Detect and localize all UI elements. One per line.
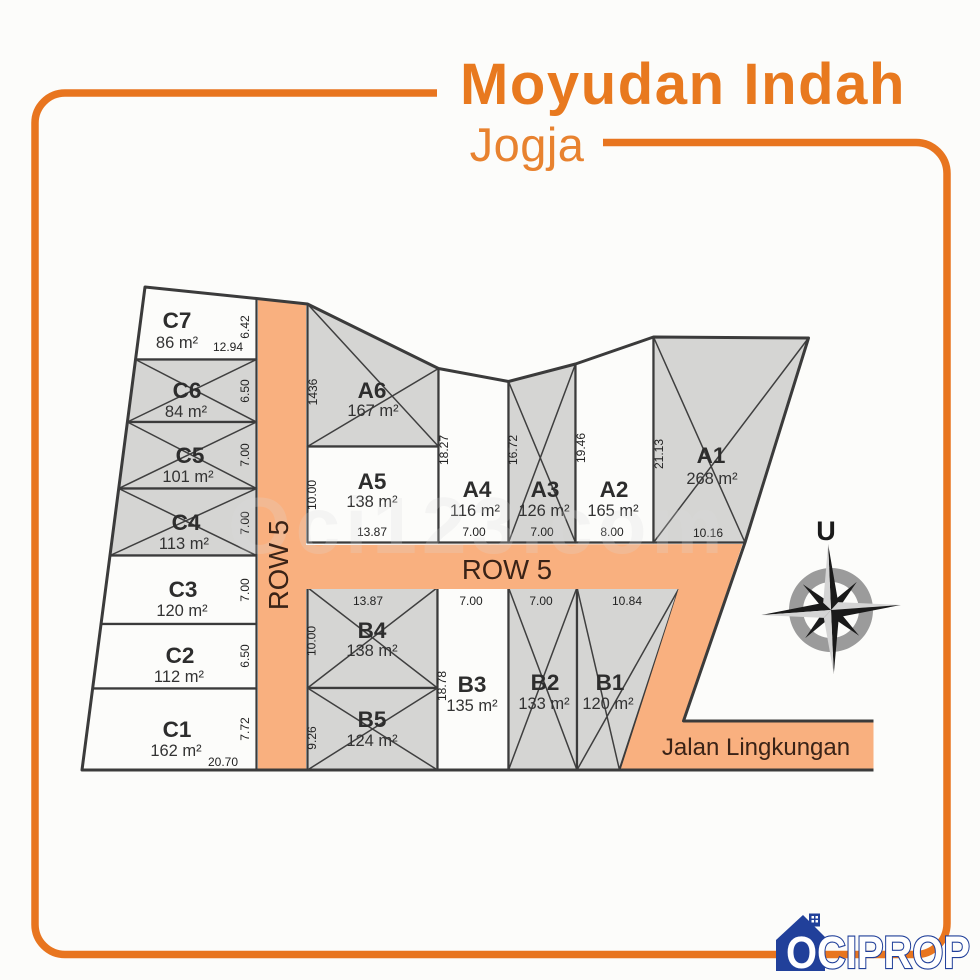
svg-text:7.00: 7.00 [238,443,252,467]
svg-text:138 m²: 138 m² [346,642,398,660]
svg-text:112 m²: 112 m² [154,668,205,686]
svg-text:120 m²: 120 m² [156,602,208,620]
svg-text:7.72: 7.72 [238,717,252,741]
svg-text:12.94: 12.94 [213,340,243,354]
svg-text:C6: C6 [173,378,202,403]
svg-text:ROW 5: ROW 5 [462,554,552,585]
svg-text:7.00: 7.00 [459,594,483,608]
svg-text:B4: B4 [358,618,387,643]
svg-text:C7: C7 [163,308,192,333]
svg-text:B2: B2 [531,670,560,695]
svg-text:B1: B1 [596,670,625,695]
svg-text:C3: C3 [169,577,198,602]
svg-text:21.13: 21.13 [652,439,666,469]
svg-text:C4: C4 [172,510,201,535]
svg-text:C2: C2 [166,643,195,668]
svg-text:13.87: 13.87 [353,594,383,608]
svg-text:Jogja: Jogja [470,118,585,171]
svg-text:120 m²: 120 m² [582,695,634,713]
svg-text:18.78: 18.78 [435,671,449,701]
svg-text:Moyudan Indah: Moyudan Indah [460,52,906,117]
svg-text:133 m²: 133 m² [518,695,570,713]
svg-text:B5: B5 [358,707,387,732]
svg-text:86 m²: 86 m² [156,334,199,352]
svg-text:ROW 5: ROW 5 [263,520,294,610]
svg-text:A6: A6 [358,378,387,403]
svg-text:124 m²: 124 m² [346,732,398,750]
svg-text:C5: C5 [176,443,205,468]
svg-text:162 m²: 162 m² [150,742,202,760]
svg-text:B3: B3 [458,672,487,697]
svg-text:19.46: 19.46 [574,433,588,463]
svg-text:Jalan Lingkungan: Jalan Lingkungan [662,734,850,761]
svg-text:6.42: 6.42 [238,315,252,339]
svg-text:9.26: 9.26 [305,726,319,750]
svg-text:167 m²: 167 m² [347,402,399,420]
svg-text:OCIPROP: OCIPROP [786,927,970,978]
svg-text:6.50: 6.50 [238,644,252,668]
svg-text:6.50: 6.50 [238,379,252,403]
svg-text:A1: A1 [697,443,726,468]
svg-text:10.84: 10.84 [612,594,642,608]
svg-text:7.00: 7.00 [529,594,553,608]
svg-text:84 m²: 84 m² [165,403,208,421]
svg-text:10.00: 10.00 [305,626,319,656]
svg-text:113 m²: 113 m² [159,535,210,553]
svg-text:U: U [816,516,836,546]
svg-text:18.27: 18.27 [437,435,451,465]
svg-text:20.70: 20.70 [208,755,238,769]
svg-text:135 m²: 135 m² [446,697,498,715]
svg-text:1436: 1436 [306,378,320,405]
svg-text:16.72: 16.72 [506,435,520,465]
svg-text:C1: C1 [163,717,192,742]
svg-text:7.00: 7.00 [238,578,252,602]
svg-text:101 m²: 101 m² [162,468,214,486]
